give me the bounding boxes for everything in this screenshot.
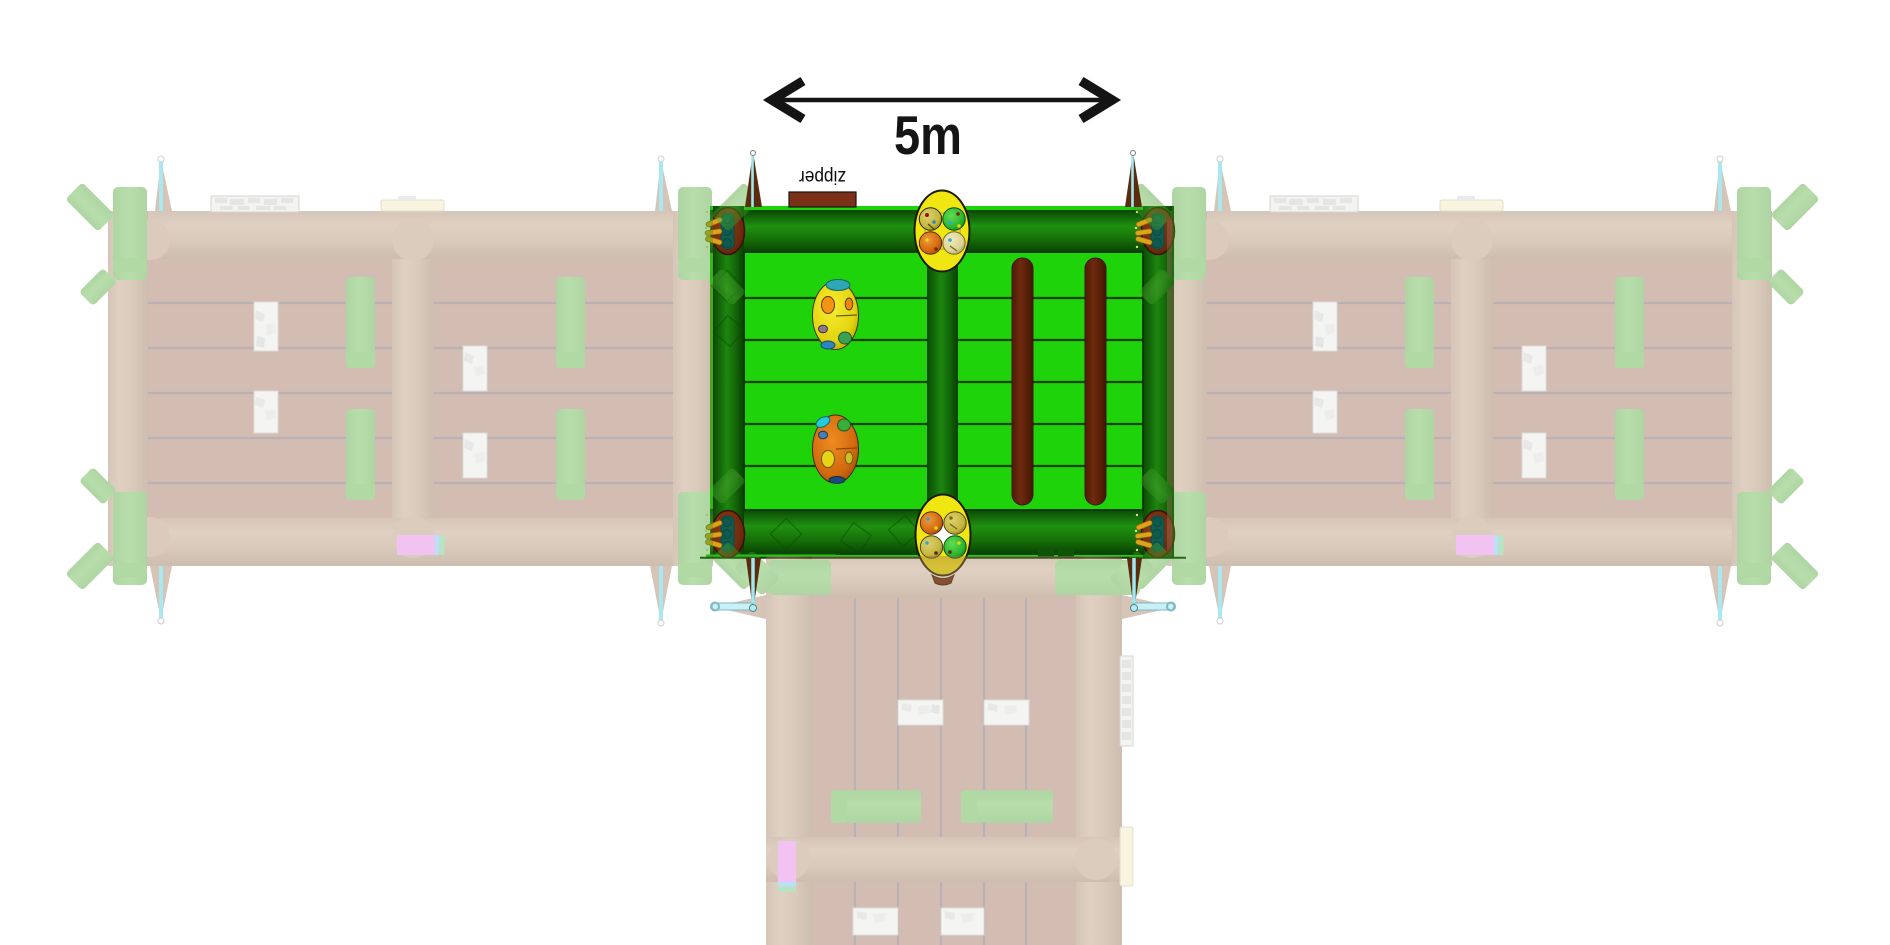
svg-text:5m: 5m xyxy=(894,104,962,166)
svg-text:zipper: zipper xyxy=(798,166,846,187)
